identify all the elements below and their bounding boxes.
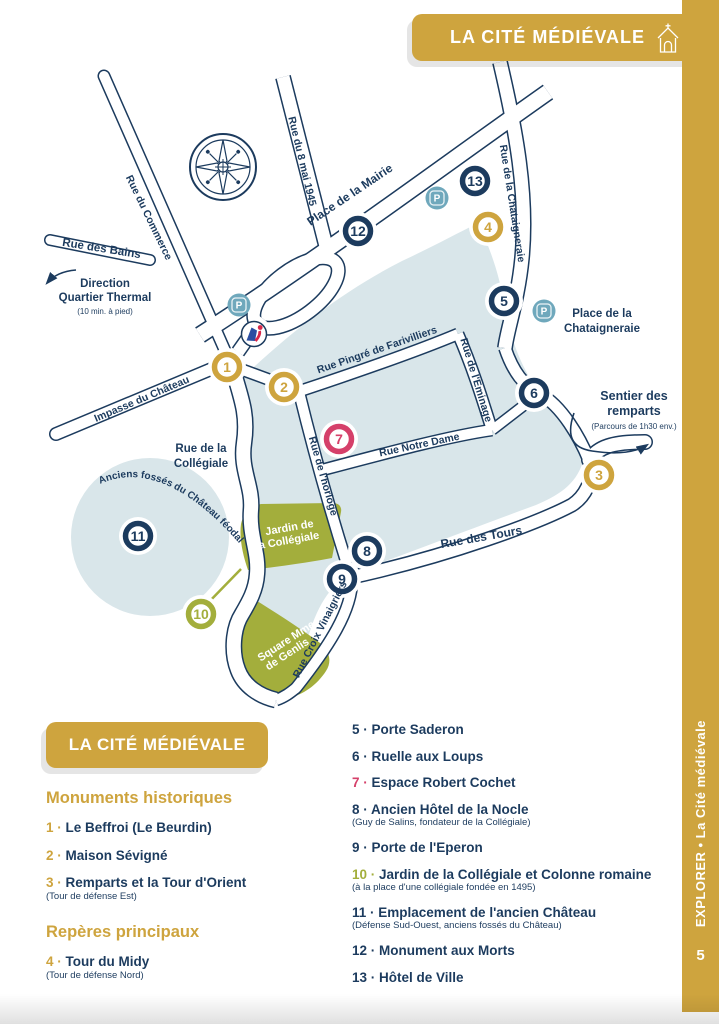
legend-left-column: LA CITÉ MÉDIÉVALE Monuments historiques1… bbox=[46, 722, 342, 982]
legend-item-number: 6 · bbox=[352, 749, 372, 764]
map-marker-2: 2 bbox=[265, 368, 303, 406]
legend-item: 4 · Tour du Midy(Tour de défense Nord) bbox=[46, 954, 342, 981]
svg-text:remparts: remparts bbox=[607, 404, 661, 418]
map-marker-3: 3 bbox=[580, 456, 618, 494]
svg-text:6: 6 bbox=[530, 385, 538, 401]
legend-item-label: Hôtel de Ville bbox=[379, 970, 464, 985]
svg-text:P: P bbox=[236, 301, 243, 312]
legend-item-label: Ruelle aux Loups bbox=[372, 749, 484, 764]
legend-item: 11 · Emplacement de l'ancien Château(Déf… bbox=[352, 905, 682, 932]
street-label-impasse: Impasse du Château bbox=[92, 374, 191, 425]
map-marker-10: 10 bbox=[182, 595, 220, 633]
map-marker-7: 7 bbox=[320, 420, 358, 458]
legend-title-box: LA CITÉ MÉDIÉVALE bbox=[46, 722, 268, 768]
svg-text:P: P bbox=[541, 307, 548, 318]
brochure-page: PPP 12345678910111213 Rue du 8 mai 1945 … bbox=[0, 0, 719, 1024]
svg-text:(Parcours de 1h30 env.): (Parcours de 1h30 env.) bbox=[591, 422, 677, 431]
legend-item-subtitle: (Tour de défense Nord) bbox=[46, 971, 342, 982]
svg-text:13: 13 bbox=[467, 173, 483, 189]
svg-text:(10 min. à pied): (10 min. à pied) bbox=[77, 307, 133, 316]
legend-item-label: Monument aux Morts bbox=[379, 943, 515, 958]
page-number: 5 bbox=[696, 947, 704, 964]
legend-item: 2 · Maison Sévigné bbox=[46, 848, 342, 864]
legend-item-number: 3 · bbox=[46, 875, 66, 890]
chapter-sidebar-label: EXPLORER • La Cité médiévale bbox=[693, 720, 708, 927]
legend-item-label: Porte Saderon bbox=[372, 722, 464, 737]
rue-collegiale-label: Rue de la Collégiale bbox=[174, 443, 228, 470]
legend-item-number: 7 · bbox=[352, 775, 372, 790]
sentier-remparts-label: Sentier des remparts (Parcours de 1h30 e… bbox=[591, 389, 677, 431]
legend-item-label: Le Beffroi (Le Beurdin) bbox=[66, 820, 212, 835]
svg-text:Collégiale: Collégiale bbox=[174, 458, 228, 470]
svg-text:Sentier des: Sentier des bbox=[600, 389, 667, 403]
svg-text:3: 3 bbox=[595, 467, 603, 483]
street-label-bains: Rue des Bains bbox=[61, 237, 141, 261]
svg-text:4: 4 bbox=[484, 219, 492, 235]
map-marker-12: 12 bbox=[339, 212, 377, 250]
legend-item-label: Jardin de la Collégiale et Colonne romai… bbox=[379, 867, 651, 882]
svg-text:10: 10 bbox=[193, 606, 209, 622]
page-bottom-shade bbox=[0, 994, 719, 1024]
page-banner-title: LA CITÉ MÉDIÉVALE bbox=[450, 27, 645, 48]
legend-item: 7 · Espace Robert Cochet bbox=[352, 775, 682, 791]
svg-text:11: 11 bbox=[131, 528, 146, 544]
map-marker-4: 4 bbox=[469, 208, 507, 246]
legend-item-number: 1 · bbox=[46, 820, 66, 835]
church-icon bbox=[655, 23, 681, 53]
legend-item-subtitle: (à la place d'une collégiale fondée en 1… bbox=[352, 883, 682, 894]
legend-item: 9 · Porte de l'Eperon bbox=[352, 840, 682, 856]
chapter-sidebar: EXPLORER • La Cité médiévale 5 bbox=[682, 0, 719, 1012]
legend-item: 13 · Hôtel de Ville bbox=[352, 970, 682, 986]
legend-item-label: Ancien Hôtel de la Nocle bbox=[371, 802, 529, 817]
legend-item-number: 2 · bbox=[46, 848, 66, 863]
legend-item: 12 · Monument aux Morts bbox=[352, 943, 682, 959]
legend-item-number: 13 · bbox=[352, 970, 379, 985]
legend-item-subtitle: (Tour de défense Est) bbox=[46, 892, 342, 903]
legend-item: 5 · Porte Saderon bbox=[352, 722, 682, 738]
old-town-area bbox=[238, 223, 584, 686]
page-banner: LA CITÉ MÉDIÉVALE bbox=[412, 14, 719, 61]
svg-text:2: 2 bbox=[280, 379, 288, 395]
legend-item: 1 · Le Beffroi (Le Beurdin) bbox=[46, 820, 342, 836]
legend-item-number: 9 · bbox=[352, 840, 372, 855]
legend-item-label: Espace Robert Cochet bbox=[372, 775, 516, 790]
svg-text:5: 5 bbox=[500, 293, 508, 309]
legend-item: 3 · Remparts et la Tour d'Orient(Tour de… bbox=[46, 875, 342, 902]
legend-heading: Repères principaux bbox=[46, 923, 342, 942]
city-map: PPP 12345678910111213 Rue du 8 mai 1945 … bbox=[0, 0, 719, 710]
legend-item-label: Porte de l'Eperon bbox=[372, 840, 483, 855]
map-marker-5: 5 bbox=[485, 282, 523, 320]
svg-text:Chataigneraie: Chataigneraie bbox=[564, 323, 640, 335]
legend-item-subtitle: (Défense Sud-Ouest, anciens fossés du Ch… bbox=[352, 921, 682, 932]
map-marker-1: 1 bbox=[208, 348, 246, 386]
svg-text:Place de la: Place de la bbox=[572, 308, 632, 320]
legend-item-label: Remparts et la Tour d'Orient bbox=[66, 875, 247, 890]
svg-text:1: 1 bbox=[223, 359, 231, 375]
legend-item-number: 11 · bbox=[352, 905, 378, 920]
legend-item-number: 8 · bbox=[352, 802, 371, 817]
legend-item-label: Tour du Midy bbox=[66, 954, 150, 969]
legend-right-column: 5 · Porte Saderon6 · Ruelle aux Loups7 ·… bbox=[352, 722, 682, 996]
svg-text:7: 7 bbox=[335, 431, 343, 447]
direction-quartier-thermal-label: Direction Quartier Thermal (10 min. à pi… bbox=[59, 278, 152, 316]
legend-item-number: 10 · bbox=[352, 867, 379, 882]
compass-rose-icon bbox=[190, 134, 256, 200]
map-marker-13: 13 bbox=[456, 162, 494, 200]
map-marker-6: 6 bbox=[515, 374, 553, 412]
svg-text:8: 8 bbox=[363, 543, 371, 559]
parking-icon: P bbox=[426, 187, 449, 210]
legend-item-subtitle: (Guy de Salins, fondateur de la Collégia… bbox=[352, 818, 682, 829]
parking-icon: P bbox=[228, 294, 251, 317]
legend-item-number: 12 · bbox=[352, 943, 379, 958]
svg-text:Rue de la: Rue de la bbox=[175, 443, 227, 455]
legend-item-label: Maison Sévigné bbox=[66, 848, 168, 863]
tourist-office-icon bbox=[242, 322, 267, 347]
svg-text:12: 12 bbox=[350, 223, 366, 239]
svg-text:Direction: Direction bbox=[80, 278, 130, 290]
place-chataigneraie-label: Place de la Chataigneraie bbox=[564, 308, 640, 335]
parking-icon: P bbox=[533, 300, 556, 323]
svg-text:Quartier Thermal: Quartier Thermal bbox=[59, 292, 152, 304]
map-marker-11: 11 bbox=[119, 517, 157, 555]
legend-item: 8 · Ancien Hôtel de la Nocle(Guy de Sali… bbox=[352, 802, 682, 829]
legend-heading: Monuments historiques bbox=[46, 789, 342, 808]
legend-item-number: 5 · bbox=[352, 722, 372, 737]
legend-item-number: 4 · bbox=[46, 954, 66, 969]
legend-item: 6 · Ruelle aux Loups bbox=[352, 749, 682, 765]
direction-arrow bbox=[47, 270, 76, 283]
legend-item-label: Emplacement de l'ancien Château bbox=[378, 905, 596, 920]
svg-text:P: P bbox=[434, 194, 441, 205]
legend-item: 10 · Jardin de la Collégiale et Colonne … bbox=[352, 867, 682, 894]
